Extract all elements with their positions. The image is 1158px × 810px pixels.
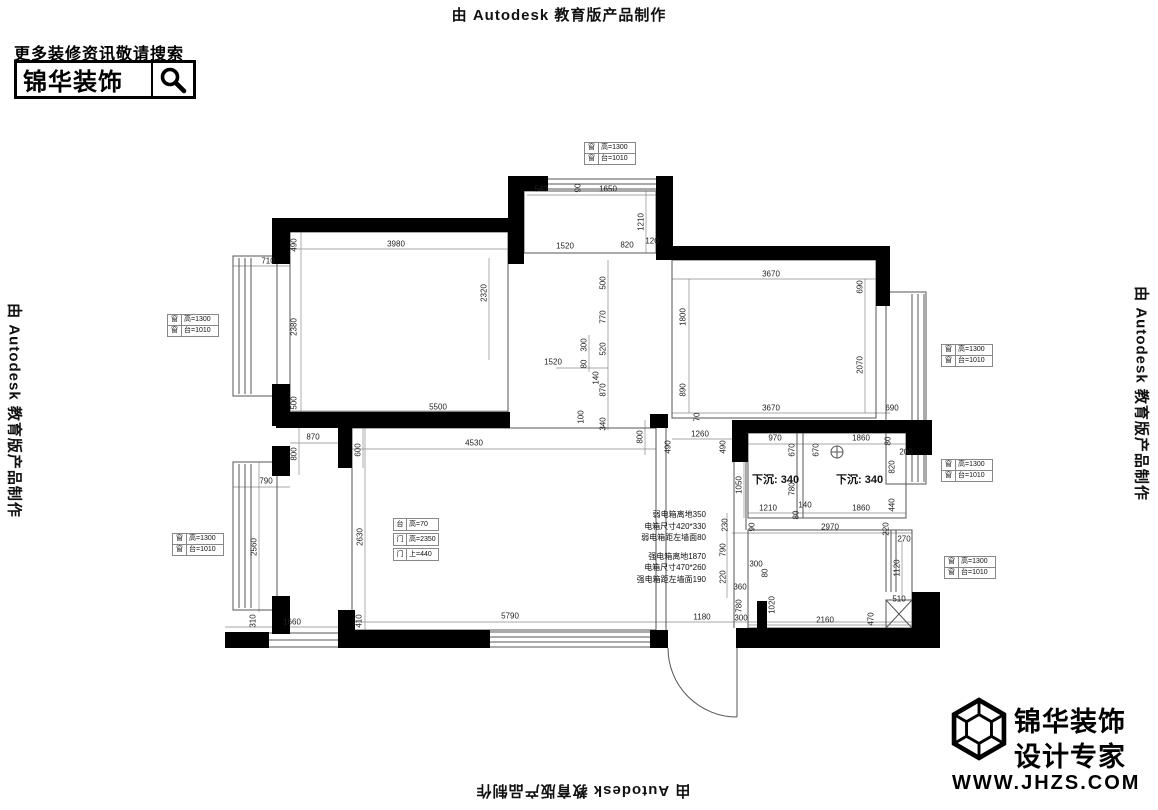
dimension-label: 2560 bbox=[250, 538, 259, 556]
dimension-label: 340 bbox=[599, 417, 608, 430]
dimension-label: 1520 bbox=[556, 242, 574, 251]
dimension-label: 470 bbox=[867, 612, 876, 625]
dimension-label: 870 bbox=[599, 383, 608, 396]
brand-cube-icon bbox=[950, 696, 1008, 762]
dimension-label: 3980 bbox=[387, 240, 405, 249]
door-spec-box: 台高=70 门高=2350 门上=440 bbox=[393, 518, 439, 563]
dimension-label: 220 bbox=[882, 522, 891, 535]
dimension-label: 300 bbox=[749, 560, 762, 569]
window-spec-box-top: 窗高=1300 窗台=1010 bbox=[584, 142, 636, 165]
window-spec-box-left-upper: 窗高=1300 窗台=1010 bbox=[167, 314, 219, 337]
dimension-label: 710 bbox=[261, 257, 274, 266]
dimension-label: 2380 bbox=[290, 318, 299, 336]
dimension-label: 820 bbox=[888, 460, 897, 473]
electrical-note-line: 强电箱距左墙面190 bbox=[598, 574, 706, 586]
dimension-label: 440 bbox=[888, 498, 897, 511]
floorplan-page: 由 Autodesk 教育版产品制作 由 Autodesk 教育版产品制作 由 … bbox=[0, 0, 1158, 810]
dimension-label: 1650 bbox=[599, 185, 617, 194]
dimension-label: 300 bbox=[580, 338, 589, 351]
dimension-label: 80 bbox=[792, 511, 801, 520]
dimension-label: 2320 bbox=[480, 284, 489, 302]
dimension-label: 200 bbox=[899, 448, 912, 457]
dimension-label: 90 bbox=[748, 523, 757, 532]
electrical-note-line: 弱电箱距左墙面80 bbox=[598, 532, 706, 544]
dimension-label: 70 bbox=[693, 413, 702, 422]
dimension-label: 800 bbox=[636, 430, 645, 443]
window-spec-box-right-mid: 窗高=1300 窗台=1010 bbox=[941, 459, 993, 482]
dimension-label: 230 bbox=[721, 518, 730, 531]
dimension-label: 2070 bbox=[856, 356, 865, 374]
electrical-note-line: 弱电箱离地350 bbox=[598, 509, 706, 521]
brand-footer-name: 锦华装饰 bbox=[1014, 700, 1126, 739]
dimension-label: 80 bbox=[761, 569, 770, 578]
dimension-label: 490 bbox=[290, 238, 299, 251]
dimension-label: 820 bbox=[620, 241, 633, 250]
electrical-note-line: 强电箱离地1870 bbox=[598, 551, 706, 563]
dimension-label: 690 bbox=[856, 280, 865, 293]
dimension-label: 510 bbox=[892, 595, 905, 604]
dimension-label: 2970 bbox=[821, 523, 839, 532]
dimension-label: 520 bbox=[599, 342, 608, 355]
dimension-label: 100 bbox=[577, 410, 586, 423]
dimension-label: 3670 bbox=[762, 270, 780, 279]
dimension-label: 870 bbox=[306, 433, 319, 442]
dimension-label: 90 bbox=[574, 184, 583, 193]
dimension-label: 140 bbox=[798, 501, 811, 510]
dimension-label: 220 bbox=[719, 570, 728, 583]
dimension-label: 4530 bbox=[465, 439, 483, 448]
dimension-label: 1520 bbox=[544, 358, 562, 367]
dimension-label: 5790 bbox=[501, 612, 519, 621]
dimension-label: 270 bbox=[897, 535, 910, 544]
dimension-label: 1180 bbox=[693, 613, 710, 622]
dimension-label: 1120 bbox=[893, 559, 902, 576]
window-spec-box-right-upper: 窗高=1300 窗台=1010 bbox=[941, 344, 993, 367]
dimension-label: 790 bbox=[259, 477, 272, 486]
sunken-label-right: 下沉: 340 bbox=[836, 471, 883, 487]
dimension-label: 300 bbox=[734, 614, 747, 623]
dimension-label: 360 bbox=[733, 583, 746, 592]
dimension-label: 670 bbox=[788, 443, 797, 456]
dimension-labels: 5409016501210152082012049039807102380232… bbox=[0, 0, 1158, 810]
dimension-label: 1210 bbox=[759, 504, 777, 513]
dimension-label: 1660 bbox=[283, 618, 301, 627]
dimension-label: 2160 bbox=[816, 616, 834, 625]
electrical-note-line: 电箱尺寸420*330 bbox=[598, 521, 706, 533]
dimension-label: 1260 bbox=[691, 430, 709, 439]
dimension-label: 1860 bbox=[852, 504, 870, 513]
dimension-label: 540 bbox=[534, 185, 547, 194]
dimension-label: 5500 bbox=[429, 403, 447, 412]
dimension-label: 120 bbox=[645, 237, 658, 246]
dimension-label: 1800 bbox=[679, 308, 688, 326]
dimension-label: 670 bbox=[812, 443, 821, 456]
dimension-label: 790 bbox=[719, 543, 728, 556]
dimension-label: 410 bbox=[355, 614, 364, 627]
dimension-label: 690 bbox=[885, 404, 898, 413]
dimension-label: 770 bbox=[599, 310, 608, 323]
dimension-label: 800 bbox=[290, 447, 299, 460]
window-spec-box-left-lower: 窗高=1300 窗台=1010 bbox=[172, 533, 224, 556]
dimension-label: 490 bbox=[664, 440, 673, 453]
dimension-label: 310 bbox=[249, 614, 258, 627]
dimension-label: 1050 bbox=[735, 476, 744, 494]
dimension-label: 1210 bbox=[637, 213, 646, 231]
dimension-label: 1020 bbox=[768, 596, 777, 614]
dimension-label: 80 bbox=[580, 360, 589, 369]
dimension-label: 80 bbox=[884, 437, 893, 446]
dimension-label: 600 bbox=[354, 443, 363, 456]
dimension-label: 890 bbox=[679, 383, 688, 396]
dimension-label: 780 bbox=[735, 599, 744, 612]
dimension-label: 490 bbox=[719, 440, 728, 453]
electrical-notes: 弱电箱离地350电箱尺寸420*330弱电箱距左墙面80强电箱离地1870电箱尺… bbox=[598, 509, 706, 585]
dimension-label: 1860 bbox=[852, 434, 870, 443]
electrical-note-line: 电箱尺寸470*260 bbox=[598, 562, 706, 574]
sunken-label-left: 下沉: 340 bbox=[752, 471, 799, 487]
dimension-label: 3670 bbox=[762, 404, 780, 413]
dimension-label: 970 bbox=[768, 434, 781, 443]
dimension-label: 500 bbox=[290, 396, 299, 409]
window-spec-box-right-lower: 窗高=1300 窗台=1010 bbox=[944, 556, 996, 579]
brand-footer-tagline: 设计专家 bbox=[1014, 735, 1126, 774]
dimension-label: 500 bbox=[599, 276, 608, 289]
brand-footer-website: WWW.JHZS.COM bbox=[952, 772, 1140, 795]
dimension-label: 2630 bbox=[356, 528, 365, 546]
